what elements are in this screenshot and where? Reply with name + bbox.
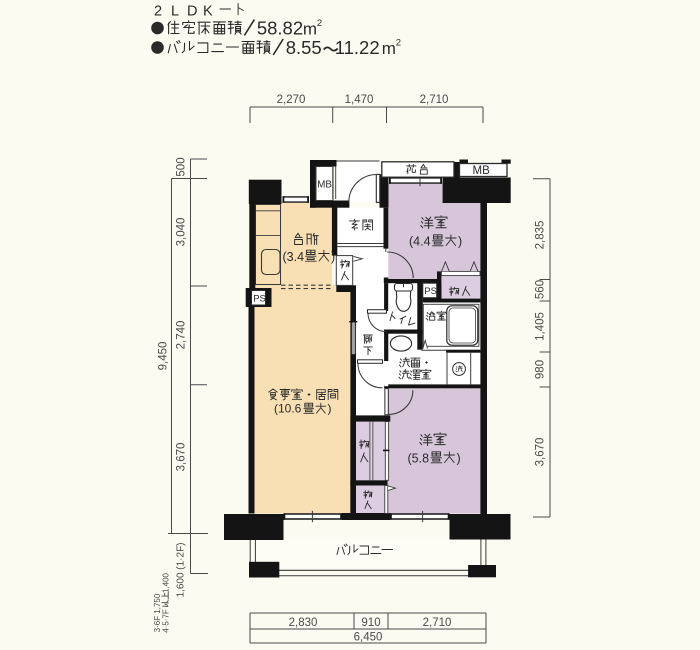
- svg-text:1,400: 1,400: [162, 572, 171, 593]
- svg-text:1,600 (1·2F): 1,600 (1·2F): [176, 542, 187, 597]
- svg-text:2,710: 2,710: [423, 617, 452, 629]
- svg-text:2: 2: [154, 4, 162, 20]
- svg-text:2,835: 2,835: [535, 221, 547, 250]
- svg-text:3,040: 3,040: [176, 218, 188, 247]
- svg-text:58.82: 58.82: [257, 18, 303, 39]
- svg-text:11.22: 11.22: [335, 37, 380, 58]
- svg-text:2: 2: [396, 38, 401, 49]
- svg-text:980: 980: [535, 360, 547, 379]
- svg-text:(10.6: (10.6: [274, 402, 302, 416]
- svg-text:6,450: 6,450: [354, 632, 383, 644]
- svg-text:2,830: 2,830: [289, 617, 318, 629]
- svg-text:K: K: [203, 4, 213, 20]
- svg-text:L: L: [171, 4, 179, 20]
- svg-text:3,670: 3,670: [176, 443, 188, 472]
- svg-text:m: m: [303, 20, 317, 39]
- svg-text:2,270: 2,270: [277, 94, 306, 106]
- svg-text:m: m: [382, 39, 396, 58]
- svg-text:): ): [457, 452, 461, 466]
- svg-text:1,470: 1,470: [345, 94, 374, 106]
- svg-text:MB: MB: [473, 165, 491, 177]
- svg-text:(3.4: (3.4: [283, 250, 305, 264]
- svg-text:1,405: 1,405: [535, 312, 547, 341]
- svg-text:2,710: 2,710: [420, 94, 449, 106]
- svg-text:(4.4: (4.4: [409, 235, 431, 249]
- svg-text:): ): [458, 235, 462, 249]
- svg-text:9,450: 9,450: [158, 342, 170, 371]
- svg-text:500: 500: [176, 157, 188, 176]
- svg-text:MB: MB: [317, 180, 332, 191]
- svg-text:910: 910: [361, 617, 380, 629]
- svg-text:4·5·7F: 4·5·7F: [162, 609, 171, 633]
- svg-text:3,670: 3,670: [535, 438, 547, 467]
- svg-text:PS: PS: [253, 294, 266, 305]
- svg-text:8.55: 8.55: [286, 37, 322, 58]
- svg-text:(5.8: (5.8: [408, 452, 430, 466]
- svg-text:2: 2: [317, 18, 322, 29]
- svg-text:): ): [328, 402, 332, 416]
- svg-text:560: 560: [535, 280, 547, 299]
- svg-text:2,740: 2,740: [176, 321, 188, 350]
- svg-text:PS: PS: [424, 286, 437, 297]
- svg-text:): ): [331, 250, 335, 264]
- svg-text:D: D: [187, 4, 197, 20]
